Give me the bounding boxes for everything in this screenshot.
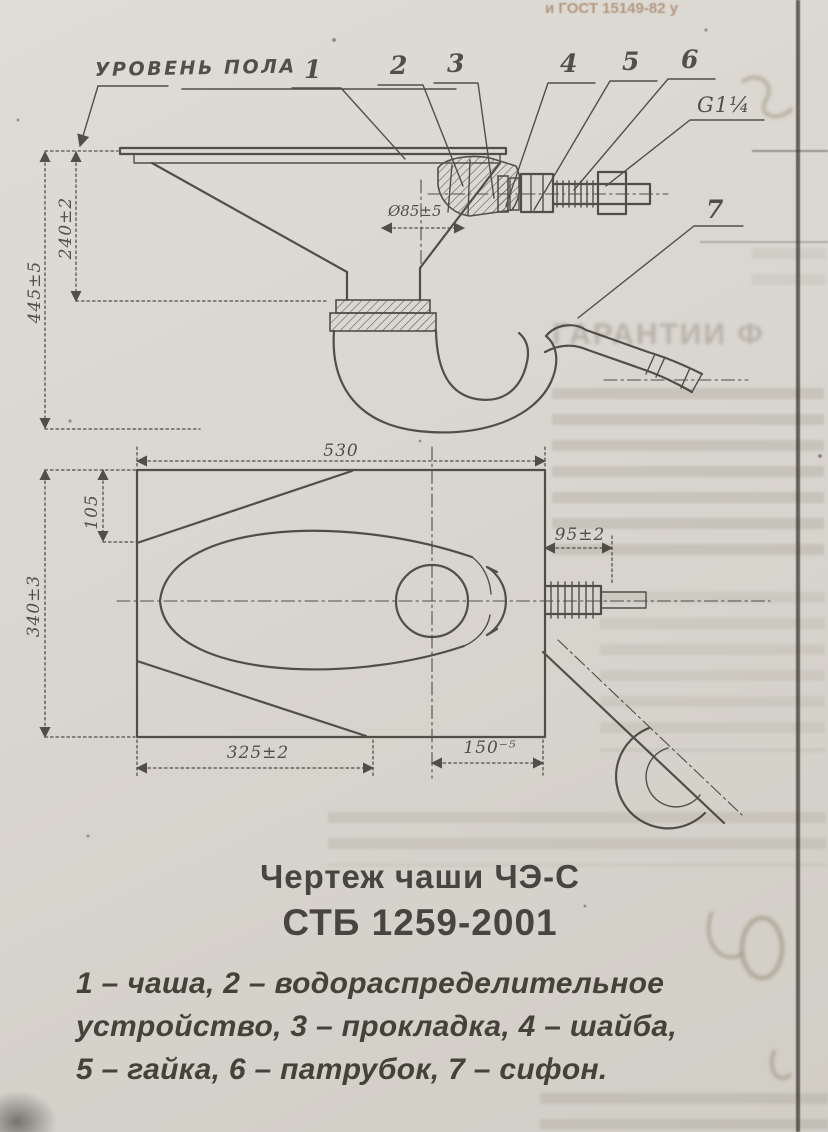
legend-line-1: 1 – чаша, 2 – водораспределительное [76,962,788,1005]
floor-label-leader [80,86,98,146]
nut [521,174,553,212]
bowl-plan [160,531,506,670]
callout-1: 1 [292,55,405,159]
callout-6-label: 6 [681,45,698,74]
dim-spigot-offset-label: 95±2 [555,525,606,545]
siphon [334,325,748,432]
side-view: УРОВЕНЬ ПОЛА [25,45,764,432]
dim-front-edge: 105 [82,470,137,542]
callout-3-label: 3 [447,49,464,78]
scanned-page: и ГОСТ 15149-82 у ГАРАНТИИ Ф [0,0,828,1132]
floor-label-underline [98,86,456,89]
legend-line-3: 5 – гайка, 6 – патрубок, 7 – сифон. [76,1048,788,1091]
floor-level-label: УРОВЕНЬ ПОЛА [95,55,297,81]
dim-width-label: 340±3 [24,575,44,638]
pan-outline [137,470,545,737]
dim-spigot-offset: 95±2 [545,525,612,585]
dim-length-label: 530 [323,441,358,461]
spigot-plan [545,582,646,618]
dim-bowl-height: 240±2 [56,152,328,301]
thread-size: G1¼ [606,93,764,186]
callout-1-label: 1 [304,55,321,84]
dim-length: 530 [137,441,545,468]
dim-left-to-outlet: 325±2 [137,740,373,778]
siphon-plan [543,640,742,828]
dim-width: 340±3 [24,470,135,737]
title-block: Чертеж чаши ЧЭ-С СТБ 1259-2001 [150,858,690,944]
standard-number: СТБ 1259-2001 [150,902,690,944]
drawing-title: Чертеж чаши ЧЭ-С [150,858,690,896]
callout-7-label: 7 [706,195,724,224]
plan-view: 530 105 340±3 95±2 325±2 [24,441,770,828]
dim-left-to-outlet-label: 325±2 [227,743,290,763]
dim-outlet-diameter-label: Ø85±5 [387,202,442,220]
callout-2-label: 2 [389,51,407,80]
dim-overall-height-label: 445±5 [25,261,45,325]
dim-bowl-height-label: 240±2 [56,197,76,261]
callout-4-label: 4 [560,49,577,78]
outlet-socket [330,300,436,331]
bleedthrough-scribble [709,77,792,1078]
thread-size-label: G1¼ [697,93,751,117]
dim-overall-height: 445±5 [25,151,200,429]
dim-outlet-to-edge: 150⁻⁵ [432,738,543,775]
parts-legend: 1 – чаша, 2 – водораспределительное устр… [76,962,788,1091]
legend-line-2: устройство, 3 – прокладка, 4 – шайба, [76,1005,788,1048]
dim-front-edge-label: 105 [82,494,102,529]
dim-outlet-to-edge-label: 150⁻⁵ [463,738,516,758]
callout-5-label: 5 [622,47,639,76]
callout-6: 6 [574,45,715,190]
